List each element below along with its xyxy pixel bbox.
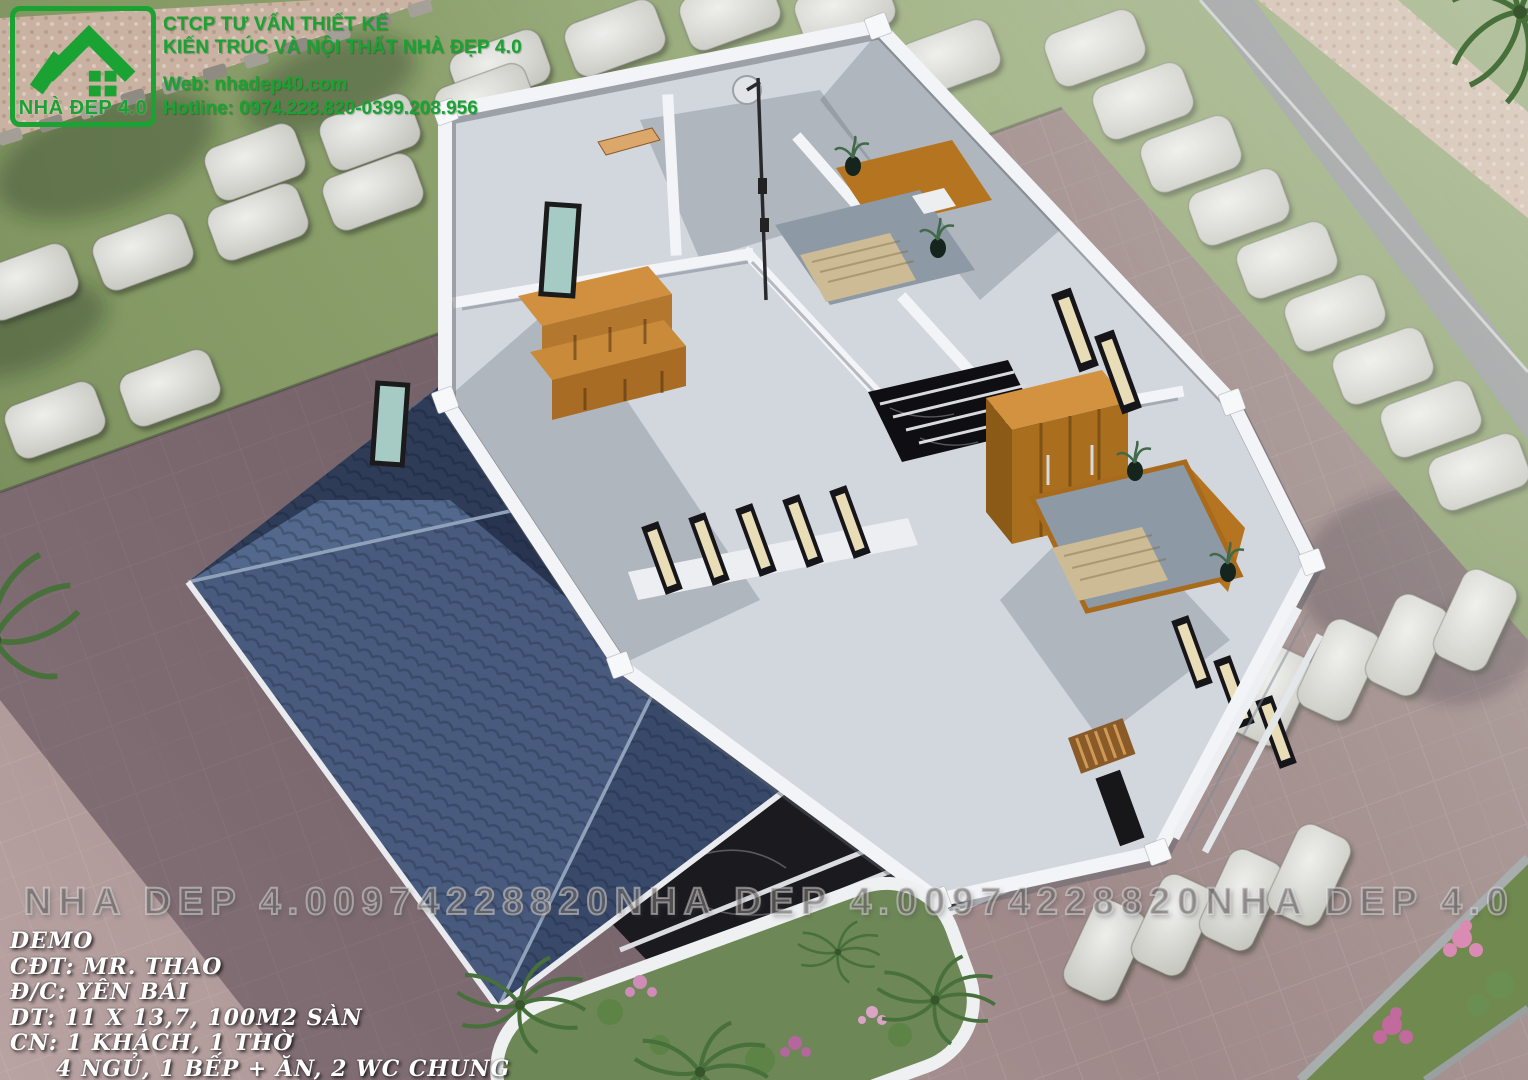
company-name-line2: KIẾN TRÚC VÀ NỘI THẤT NHÀ ĐẸP 4.0 [163, 36, 522, 59]
company-info: CTCP TƯ VẤN THIẾT KẾ KIẾN TRÚC VÀ NỘI TH… [163, 13, 522, 121]
watermark-item: NHA DEP 4.0 [615, 881, 924, 924]
house-logo-icon [24, 19, 142, 99]
project-rooms-2: 4 NGỦ, 1 BẾP + ĂN, 2 WC CHUNG [10, 1057, 510, 1080]
project-area: DT: 11 X 13,7, 100M2 SÀN [10, 1006, 510, 1032]
logo: NHÀ ĐẸP 4.0 [10, 6, 156, 127]
company-hotline: Hotline: 0974.228.820-0399.208.956 [163, 97, 522, 121]
project-address: Đ/C: YÊN BÁI [10, 980, 510, 1006]
watermark-item: 0974228820 [333, 881, 614, 924]
project-demo-label: DEMO [10, 929, 510, 955]
company-name-line1: CTCP TƯ VẤN THIẾT KẾ [163, 13, 522, 36]
watermark-item: NHA DEP 4.0 [1205, 881, 1514, 924]
project-rooms-1: CN: 1 KHÁCH, 1 THỜ [10, 1031, 510, 1057]
logo-text: NHÀ ĐẸP 4.0 [19, 97, 148, 120]
project-info: DEMO CĐT: MR. THAO Đ/C: YÊN BÁI DT: 11 X… [10, 929, 510, 1080]
project-owner: CĐT: MR. THAO [10, 955, 510, 981]
watermark-item: NHA DEP 4.0 [24, 881, 333, 924]
company-website: Web: nhadep40.com [163, 73, 522, 97]
render-poster: NHÀ ĐẸP 4.0 CTCP TƯ VẤN THIẾT KẾ KIẾN TR… [0, 0, 1528, 1080]
watermark-band: NHA DEP 4.0 0974228820 NHA DEP 4.0 09742… [0, 880, 1528, 924]
watermark-item: 0974228820 [924, 881, 1205, 924]
